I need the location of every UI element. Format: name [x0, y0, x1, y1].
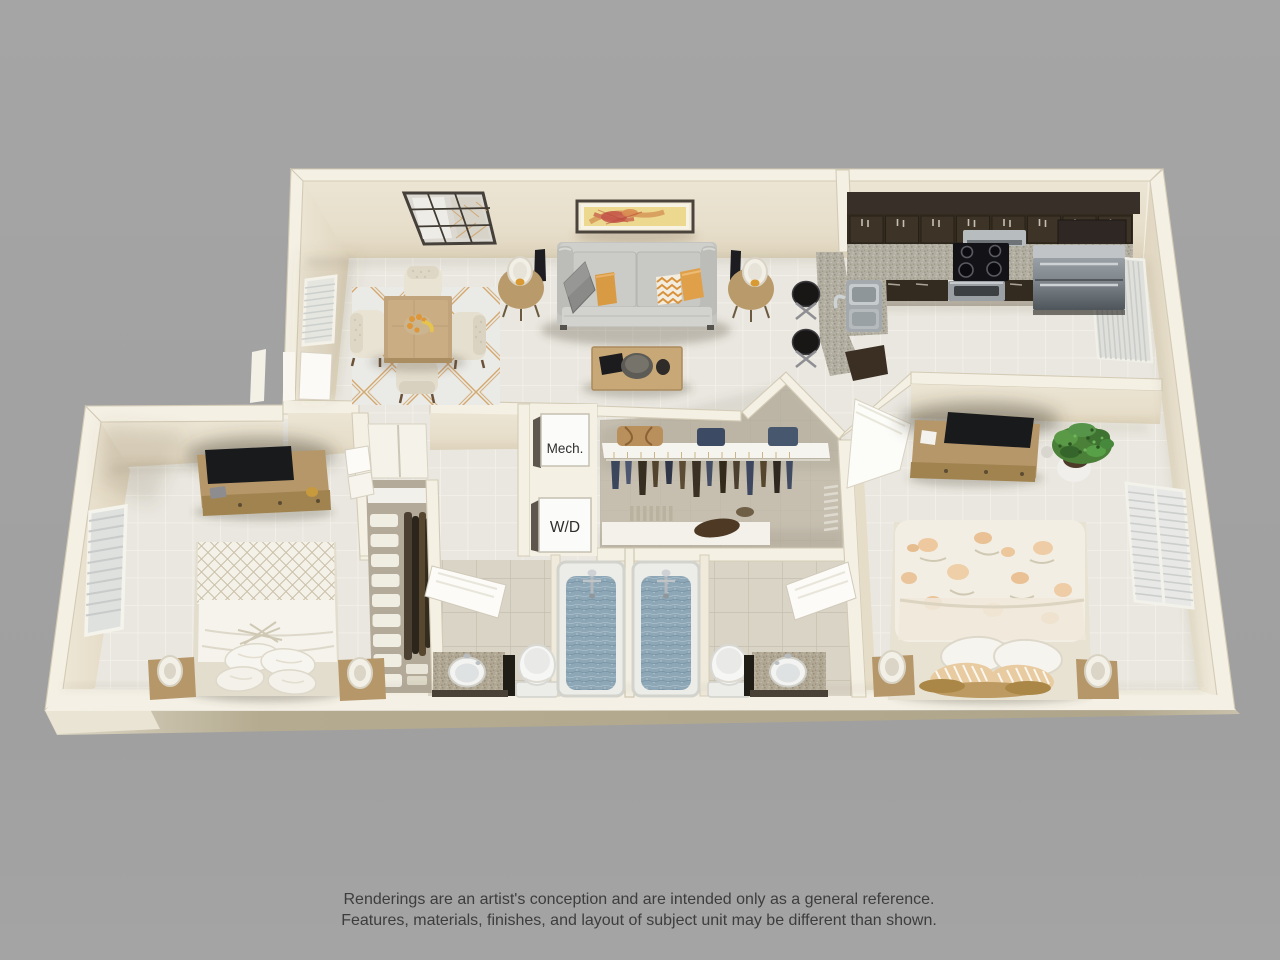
- svg-text:Mech.: Mech.: [547, 441, 584, 456]
- svg-text:W/D: W/D: [550, 519, 580, 536]
- svg-text:Renderings are an artist's con: Renderings are an artist's conception an…: [344, 891, 935, 908]
- svg-text:Features, materials, finishes,: Features, materials, finishes, and layou…: [341, 912, 937, 929]
